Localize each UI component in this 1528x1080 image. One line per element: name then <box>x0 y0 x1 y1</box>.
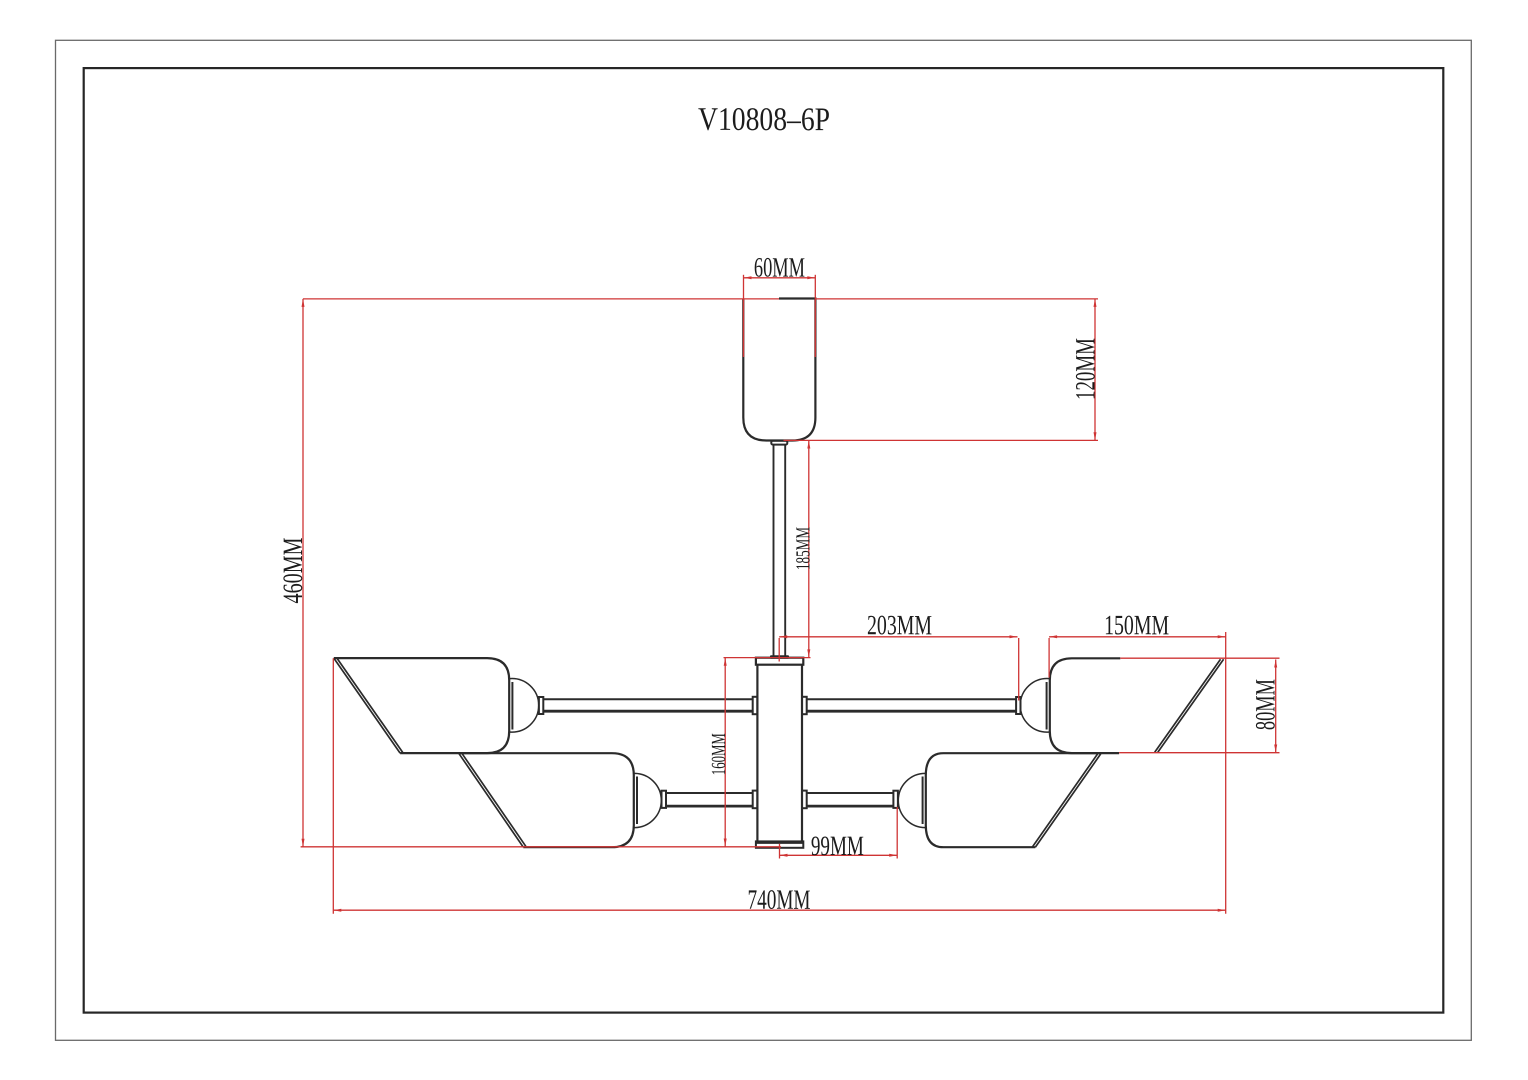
svg-text:185MM: 185MM <box>793 527 815 570</box>
svg-text:60MM: 60MM <box>754 253 805 284</box>
svg-text:99MM: 99MM <box>811 831 864 862</box>
svg-text:120MM: 120MM <box>1070 338 1101 400</box>
svg-text:80MM: 80MM <box>1251 679 1282 730</box>
svg-text:V10808–6P: V10808–6P <box>698 102 830 138</box>
svg-text:203MM: 203MM <box>867 610 932 641</box>
svg-text:740MM: 740MM <box>747 885 810 916</box>
svg-text:160MM: 160MM <box>708 733 730 775</box>
svg-text:150MM: 150MM <box>1104 610 1169 641</box>
svg-text:460MM: 460MM <box>278 537 309 603</box>
